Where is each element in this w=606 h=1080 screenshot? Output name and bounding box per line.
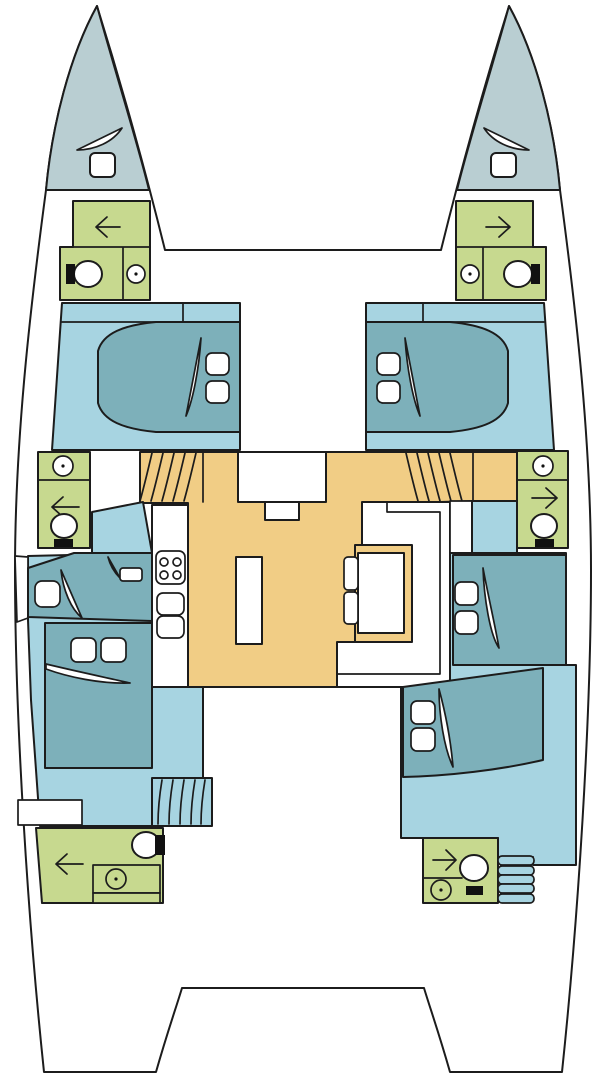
pillow <box>206 381 229 403</box>
port-forward-cabin <box>52 303 240 450</box>
step-locker <box>18 800 82 825</box>
starboard-forward-head <box>456 201 546 300</box>
starboard-mid-head <box>516 451 568 548</box>
port-mid-head <box>38 452 90 548</box>
pillow <box>71 638 96 662</box>
hull-shelf <box>15 556 28 622</box>
double-bed <box>98 322 240 432</box>
counter-strip <box>93 893 160 903</box>
toilet-icon <box>504 261 532 287</box>
deck-plan-drawing <box>0 0 606 1080</box>
toilet-tank <box>54 539 73 547</box>
double-bed <box>366 322 508 432</box>
galley-sink <box>157 616 184 638</box>
sideboard <box>238 452 326 502</box>
toilet-icon <box>74 261 102 287</box>
stair-step <box>498 866 534 875</box>
pillow <box>455 582 478 605</box>
stair-step <box>498 875 534 884</box>
sideboard-step <box>265 502 299 520</box>
pillow <box>455 611 478 634</box>
pillow <box>377 353 400 375</box>
pillow <box>101 638 126 662</box>
toilet-tank <box>531 264 540 284</box>
pillow <box>377 381 400 403</box>
corridor <box>92 502 152 553</box>
toilet-tank <box>155 835 165 855</box>
island-counter <box>236 557 262 644</box>
starboard-aft-stairs <box>498 856 534 903</box>
port-forward-head <box>60 201 150 300</box>
chair <box>344 557 358 590</box>
dinette-table <box>358 553 404 633</box>
port-aft-stairs <box>152 778 212 826</box>
corridor <box>472 501 517 553</box>
double-bed <box>45 623 152 768</box>
toilet-tank <box>535 539 554 547</box>
toilet-tank <box>66 264 75 284</box>
port-deck-hatch-icon <box>90 153 115 177</box>
starboard-deck-hatch-icon <box>491 153 516 177</box>
pillow <box>411 728 435 751</box>
chair <box>344 592 358 624</box>
toilet-icon <box>51 514 77 538</box>
catamaran-deck-plan <box>0 0 606 1080</box>
stair-step <box>498 856 534 865</box>
starboard-aft-head <box>423 838 498 903</box>
pillow <box>206 353 229 375</box>
toilet-tank <box>466 886 483 895</box>
mid-double-bed <box>453 555 566 665</box>
stair-step <box>498 894 534 903</box>
toilet-icon <box>531 514 557 538</box>
starboard-forward-cabin <box>366 303 554 450</box>
port-aft-head <box>36 828 165 903</box>
stove-icon <box>156 551 185 584</box>
stair-step <box>498 884 534 893</box>
pillow <box>35 581 60 607</box>
shelf <box>120 568 142 581</box>
pillow <box>411 701 435 724</box>
landing <box>450 501 472 553</box>
galley-sink <box>157 593 184 615</box>
toilet-icon <box>460 855 488 881</box>
